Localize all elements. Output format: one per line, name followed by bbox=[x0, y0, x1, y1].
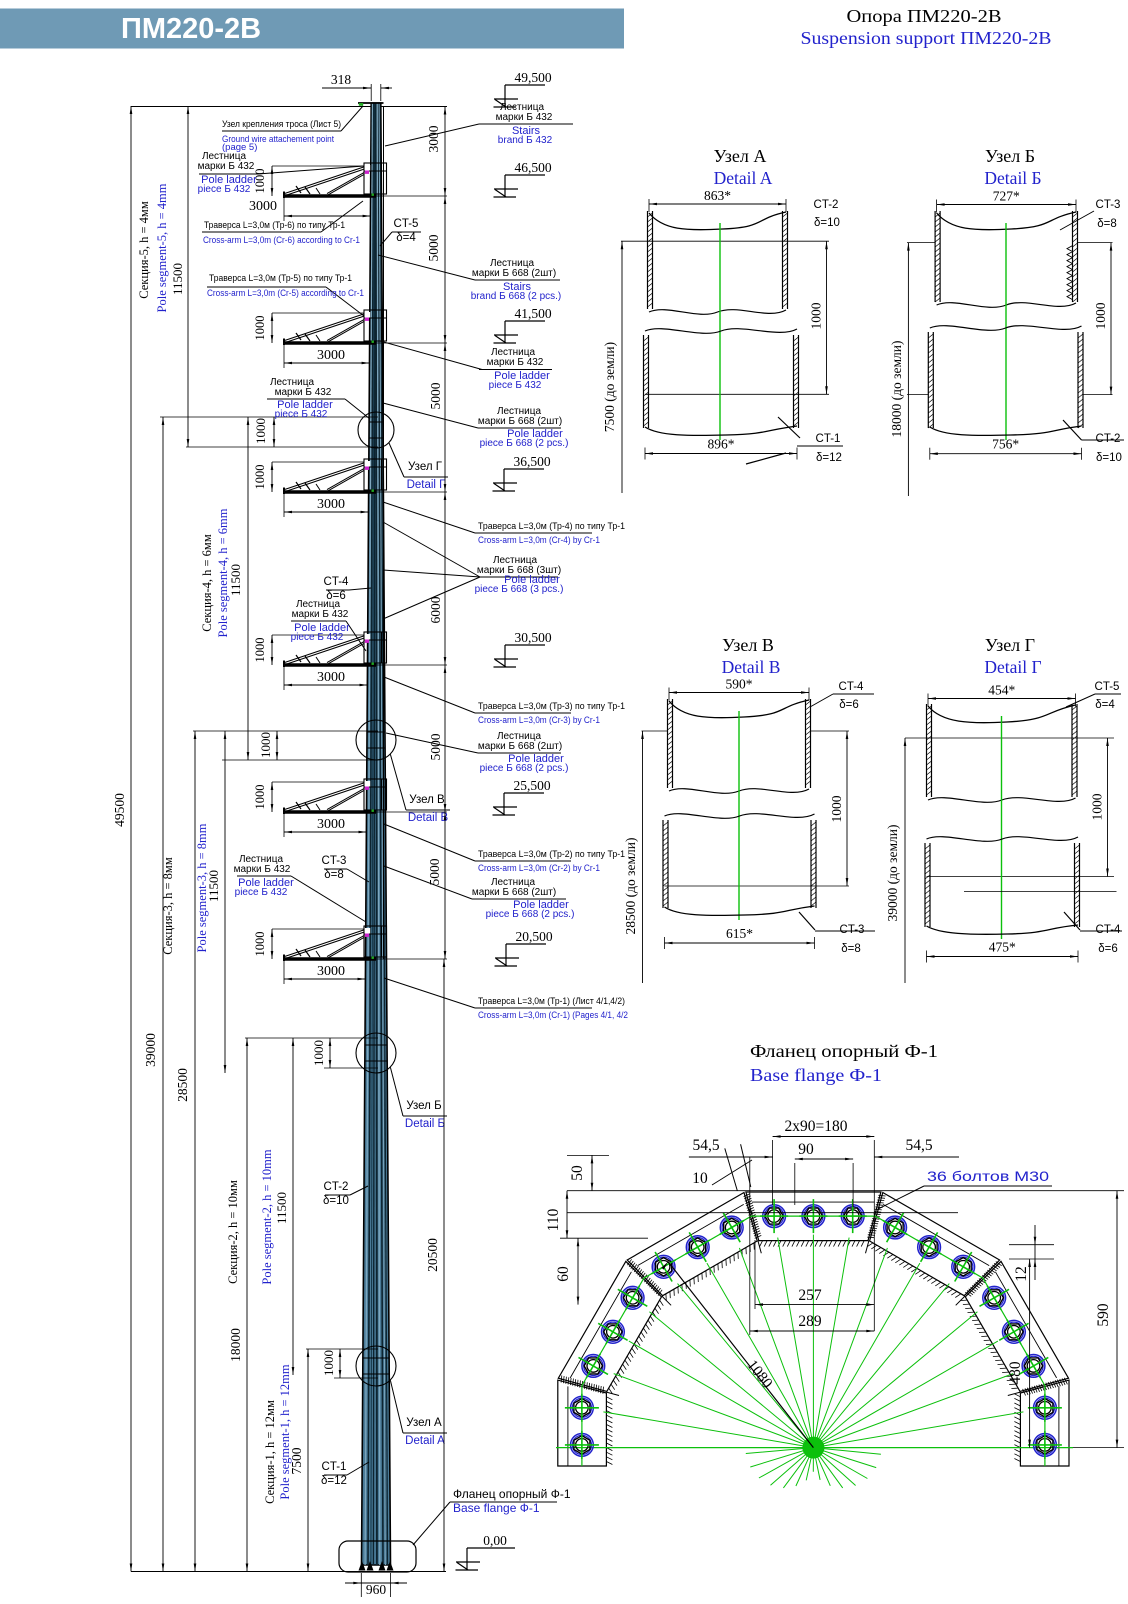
svg-text:Траверса L=3,0м (Тр-1) (Лист: Траверса L=3,0м (Тр-1) (Лист 4/1,4/2) bbox=[478, 996, 625, 1006]
svg-text:Detail Б: Detail Б bbox=[405, 1118, 445, 1130]
svg-text:1000: 1000 bbox=[809, 302, 824, 329]
svg-text:36 болтов М30: 36 болтов М30 bbox=[927, 1168, 1049, 1184]
svg-text:Узел Г: Узел Г bbox=[408, 461, 443, 473]
svg-text:2x90=180: 2x90=180 bbox=[785, 1118, 848, 1135]
svg-text:Узел В: Узел В bbox=[409, 794, 445, 806]
svg-text:Секция-2, h = 10мм: Секция-2, h = 10мм bbox=[226, 1180, 240, 1284]
svg-text:CT-2: CT-2 bbox=[324, 1181, 349, 1193]
svg-text:39000 (до земли): 39000 (до земли) bbox=[885, 825, 900, 922]
svg-text:piece Б 432: piece Б 432 bbox=[489, 380, 542, 391]
svg-text:brand Б 432: brand Б 432 bbox=[498, 135, 553, 146]
svg-text:Траверса L=3,0м (Тр-4) по ти: Траверса L=3,0м (Тр-4) по типу Тр-1 bbox=[478, 521, 625, 531]
svg-text:CT-3: CT-3 bbox=[1096, 199, 1121, 211]
svg-text:727*: 727* bbox=[993, 189, 1020, 204]
svg-text:Траверса L=3,0м (Тр-3) по ти: Траверса L=3,0м (Тр-3) по типу Тр-1 bbox=[478, 701, 625, 711]
svg-text:960: 960 bbox=[366, 1582, 387, 1597]
svg-text:3000: 3000 bbox=[317, 670, 345, 685]
svg-text:41,500: 41,500 bbox=[514, 306, 551, 321]
svg-text:CT-4: CT-4 bbox=[839, 681, 865, 693]
svg-text:δ=6: δ=6 bbox=[839, 699, 859, 711]
svg-text:piece Б 668 (3 pcs.): piece Б 668 (3 pcs.) bbox=[475, 584, 564, 595]
svg-text:Pole segment-5, h = 4mm: Pole segment-5, h = 4mm bbox=[155, 183, 169, 312]
svg-text:20500: 20500 bbox=[425, 1238, 440, 1272]
svg-text:марки Б 668 (2шт): марки Б 668 (2шт) bbox=[472, 887, 556, 898]
svg-text:5000: 5000 bbox=[428, 382, 443, 409]
svg-text:Pole segment-2, h = 10mm: Pole segment-2, h = 10mm bbox=[260, 1149, 274, 1284]
svg-text:60: 60 bbox=[555, 1266, 572, 1282]
svg-text:Cross-arm L=3,0m (Cr-5) accor: Cross-arm L=3,0m (Cr-5) according to Cr-… bbox=[207, 288, 364, 298]
svg-text:11500: 11500 bbox=[170, 263, 185, 295]
svg-text:Detail Г: Detail Г bbox=[407, 479, 447, 491]
svg-text:Cross-arm L=3,0m (Cr-1) (Page: Cross-arm L=3,0m (Cr-1) (Pages 4/1, 4/2 bbox=[478, 1010, 628, 1020]
svg-text:δ=10: δ=10 bbox=[323, 1195, 349, 1207]
svg-text:28500 (до земли): 28500 (до земли) bbox=[623, 838, 638, 935]
svg-text:Секция-4, h = 6мм: Секция-4, h = 6мм bbox=[200, 534, 214, 632]
svg-text:30,500: 30,500 bbox=[514, 630, 551, 645]
svg-text:марки Б 668 (2шт): марки Б 668 (2шт) bbox=[478, 416, 562, 427]
svg-text:110: 110 bbox=[545, 1208, 562, 1231]
svg-text:Узел Б: Узел Б bbox=[985, 146, 1035, 166]
svg-text:36,500: 36,500 bbox=[513, 454, 550, 469]
svg-text:28500: 28500 bbox=[175, 1068, 190, 1102]
svg-text:1000: 1000 bbox=[311, 1040, 326, 1066]
svg-text:CT-2: CT-2 bbox=[814, 199, 839, 211]
svg-text:11500: 11500 bbox=[274, 1192, 289, 1224]
svg-text:CT-3: CT-3 bbox=[840, 924, 865, 936]
svg-text:δ=6: δ=6 bbox=[1098, 943, 1118, 955]
svg-text:Секция-1, h = 12мм: Секция-1, h = 12мм bbox=[263, 1400, 277, 1504]
svg-text:δ=12: δ=12 bbox=[321, 1475, 347, 1487]
svg-text:CT-5: CT-5 bbox=[394, 218, 419, 230]
svg-text:12: 12 bbox=[1013, 1266, 1030, 1282]
svg-text:Фланец опорный Ф-1: Фланец опорный Ф-1 bbox=[750, 1041, 938, 1061]
svg-text:590: 590 bbox=[1095, 1303, 1112, 1327]
svg-text:46,500: 46,500 bbox=[514, 160, 551, 175]
svg-text:марки Б 668 (2шт): марки Б 668 (2шт) bbox=[472, 268, 556, 279]
svg-text:25,500: 25,500 bbox=[513, 778, 550, 793]
svg-text:289: 289 bbox=[798, 1313, 822, 1330]
svg-text:454*: 454* bbox=[988, 683, 1015, 698]
svg-text:50: 50 bbox=[569, 1165, 586, 1181]
svg-text:δ=8: δ=8 bbox=[1097, 218, 1117, 230]
svg-text:1000: 1000 bbox=[253, 638, 267, 663]
svg-text:Detail Г: Detail Г bbox=[984, 657, 1041, 677]
svg-text:1000: 1000 bbox=[253, 465, 267, 490]
svg-text:Detail A: Detail A bbox=[405, 1435, 445, 1447]
svg-text:3000: 3000 bbox=[317, 497, 345, 512]
svg-text:Траверса L=3,0м (Тр-6) по ти: Траверса L=3,0м (Тр-6) по типу Тр-1 bbox=[204, 220, 345, 230]
svg-text:756*: 756* bbox=[992, 437, 1019, 452]
svg-text:Base flange Ф-1: Base flange Ф-1 bbox=[453, 1501, 540, 1515]
svg-text:590*: 590* bbox=[726, 677, 753, 692]
svg-text:piece Б 432: piece Б 432 bbox=[275, 409, 328, 420]
svg-text:Узел крепления троса (Лист 5): Узел крепления троса (Лист 5) bbox=[222, 119, 341, 130]
svg-text:Detail B: Detail B bbox=[722, 657, 781, 677]
svg-text:piece Б 668 (2 pcs.): piece Б 668 (2 pcs.) bbox=[480, 438, 569, 449]
svg-text:CT-2: CT-2 bbox=[1096, 433, 1121, 445]
svg-text:δ=12: δ=12 bbox=[816, 452, 842, 464]
svg-text:39000: 39000 bbox=[143, 1033, 158, 1067]
svg-text:Траверса L=3,0м (Тр-5) по ти: Траверса L=3,0м (Тр-5) по типу Тр-1 bbox=[209, 273, 352, 283]
svg-text:1000: 1000 bbox=[253, 932, 267, 957]
svg-text:3000: 3000 bbox=[317, 964, 345, 979]
svg-text:3000: 3000 bbox=[426, 125, 441, 152]
svg-text:Узел Б: Узел Б bbox=[406, 1100, 441, 1112]
svg-text:5000: 5000 bbox=[427, 858, 442, 885]
svg-text:Траверса L=3,0м (Тр-2) по ти: Траверса L=3,0м (Тр-2) по типу Тр-1 bbox=[478, 849, 625, 859]
svg-text:δ=8: δ=8 bbox=[324, 869, 344, 881]
svg-text:δ=6: δ=6 bbox=[326, 590, 346, 602]
svg-text:1000: 1000 bbox=[1090, 793, 1105, 820]
svg-text:δ=10: δ=10 bbox=[1096, 452, 1122, 464]
svg-text:Base flange Ф-1: Base flange Ф-1 bbox=[750, 1065, 882, 1085]
svg-text:δ=8: δ=8 bbox=[841, 943, 861, 955]
svg-text:615*: 615* bbox=[726, 926, 753, 941]
svg-text:3000: 3000 bbox=[317, 348, 345, 363]
svg-text:piece Б 432: piece Б 432 bbox=[291, 632, 344, 643]
svg-text:марки Б 668 (2шт): марки Б 668 (2шт) bbox=[478, 741, 562, 752]
svg-text:CT-5: CT-5 bbox=[1095, 681, 1120, 693]
svg-text:Секция-3, h = 8мм: Секция-3, h = 8мм bbox=[161, 857, 175, 955]
svg-text:6000: 6000 bbox=[428, 596, 443, 623]
svg-text:54,5: 54,5 bbox=[905, 1137, 932, 1154]
svg-text:Pole segment-4, h = 6mm: Pole segment-4, h = 6mm bbox=[216, 508, 230, 637]
svg-text:1000: 1000 bbox=[321, 1350, 336, 1376]
svg-text:Detail B: Detail B bbox=[408, 812, 449, 824]
svg-text:54,5: 54,5 bbox=[692, 1137, 719, 1154]
svg-text:11500: 11500 bbox=[228, 564, 243, 596]
svg-text:CT-1: CT-1 bbox=[322, 1461, 347, 1473]
svg-text:5000: 5000 bbox=[428, 733, 443, 760]
svg-text:Фланец опорный Ф-1: Фланец опорный Ф-1 bbox=[453, 1487, 571, 1501]
svg-text:ПМ220-2В: ПМ220-2В bbox=[121, 13, 261, 45]
svg-text:марки Б 432: марки Б 432 bbox=[198, 161, 255, 172]
svg-text:18000: 18000 bbox=[228, 1328, 243, 1362]
svg-text:Секция-5, h = 4мм: Секция-5, h = 4мм bbox=[137, 201, 151, 299]
svg-text:CT-3: CT-3 bbox=[322, 855, 347, 867]
svg-text:Suspension support ПМ220-2В: Suspension support ПМ220-2В bbox=[801, 28, 1052, 48]
svg-text:10: 10 bbox=[692, 1170, 708, 1187]
svg-text:Узел А: Узел А bbox=[714, 146, 767, 166]
svg-text:3000: 3000 bbox=[249, 199, 277, 214]
svg-text:49500: 49500 bbox=[112, 793, 127, 827]
svg-text:1000: 1000 bbox=[829, 795, 844, 822]
svg-text:Узел Г: Узел Г bbox=[985, 635, 1035, 655]
svg-text:3000: 3000 bbox=[317, 817, 345, 832]
svg-text:1000: 1000 bbox=[253, 785, 267, 810]
svg-text:Cross-arm L=3,0m (Cr-4) by Cr: Cross-arm L=3,0m (Cr-4) by Cr-1 bbox=[478, 535, 600, 545]
svg-text:piece Б 668 (2 pcs.): piece Б 668 (2 pcs.) bbox=[480, 763, 569, 774]
svg-text:20,500: 20,500 bbox=[515, 929, 552, 944]
svg-text:марки Б 432: марки Б 432 bbox=[275, 387, 332, 398]
svg-text:49,500: 49,500 bbox=[514, 70, 551, 85]
svg-text:90: 90 bbox=[798, 1141, 814, 1158]
svg-text:piece Б 668 (2 pcs.): piece Б 668 (2 pcs.) bbox=[486, 909, 575, 920]
svg-text:Cross-arm L=3,0m (Cr-2) by Cr: Cross-arm L=3,0m (Cr-2) by Cr-1 bbox=[478, 863, 600, 873]
svg-text:марки Б 432: марки Б 432 bbox=[496, 112, 553, 123]
svg-text:CT-4: CT-4 bbox=[1096, 924, 1122, 936]
svg-text:piece Б 432: piece Б 432 bbox=[198, 184, 251, 195]
svg-text:18000 (до земли): 18000 (до земли) bbox=[889, 341, 904, 438]
svg-text:δ=4: δ=4 bbox=[1095, 699, 1115, 711]
svg-text:896*: 896* bbox=[708, 437, 735, 452]
svg-text:5000: 5000 bbox=[426, 234, 441, 261]
svg-text:марки Б 432: марки Б 432 bbox=[292, 609, 349, 620]
svg-text:δ=10: δ=10 bbox=[814, 217, 840, 229]
svg-text:марки Б 432: марки Б 432 bbox=[487, 357, 544, 368]
svg-text:piece Б 432: piece Б 432 bbox=[235, 887, 288, 898]
svg-text:brand Б 668 (2 pcs.): brand Б 668 (2 pcs.) bbox=[471, 291, 562, 302]
svg-text:CT-1: CT-1 bbox=[816, 433, 841, 445]
svg-text:1000: 1000 bbox=[253, 316, 267, 341]
svg-text:7500 (до земли): 7500 (до земли) bbox=[602, 342, 617, 432]
svg-text:Узел А: Узел А bbox=[406, 1417, 442, 1429]
svg-text:318: 318 bbox=[331, 72, 352, 87]
svg-text:Cross-arm L=3,0m (Cr-3) by Cr: Cross-arm L=3,0m (Cr-3) by Cr-1 bbox=[478, 715, 600, 725]
svg-text:1000: 1000 bbox=[1093, 302, 1108, 329]
svg-text:Detail A: Detail A bbox=[714, 168, 773, 188]
svg-text:Detail Б: Detail Б bbox=[984, 168, 1041, 188]
svg-text:475*: 475* bbox=[989, 940, 1016, 955]
svg-text:δ=4: δ=4 bbox=[396, 232, 416, 244]
svg-text:1000: 1000 bbox=[258, 732, 273, 758]
svg-text:Pole segment-1, h = 12mm: Pole segment-1, h = 12mm bbox=[278, 1364, 292, 1499]
svg-text:257: 257 bbox=[798, 1287, 822, 1304]
svg-text:Pole segment-3, h = 8mm: Pole segment-3, h = 8mm bbox=[195, 823, 209, 952]
svg-text:Опора ПМ220-2В: Опора ПМ220-2В bbox=[847, 6, 1002, 26]
svg-text:0,00: 0,00 bbox=[483, 1533, 507, 1548]
svg-text:Узел В: Узел В bbox=[722, 635, 774, 655]
svg-text:марки Б 432: марки Б 432 bbox=[234, 864, 291, 875]
svg-text:480: 480 bbox=[1007, 1361, 1024, 1385]
svg-text:863*: 863* bbox=[704, 188, 731, 203]
svg-text:Cross-arm L=3,0m (Cr-6) accor: Cross-arm L=3,0m (Cr-6) according to Cr-… bbox=[203, 235, 360, 245]
svg-text:1000: 1000 bbox=[253, 418, 268, 444]
svg-text:CT-4: CT-4 bbox=[324, 576, 350, 588]
